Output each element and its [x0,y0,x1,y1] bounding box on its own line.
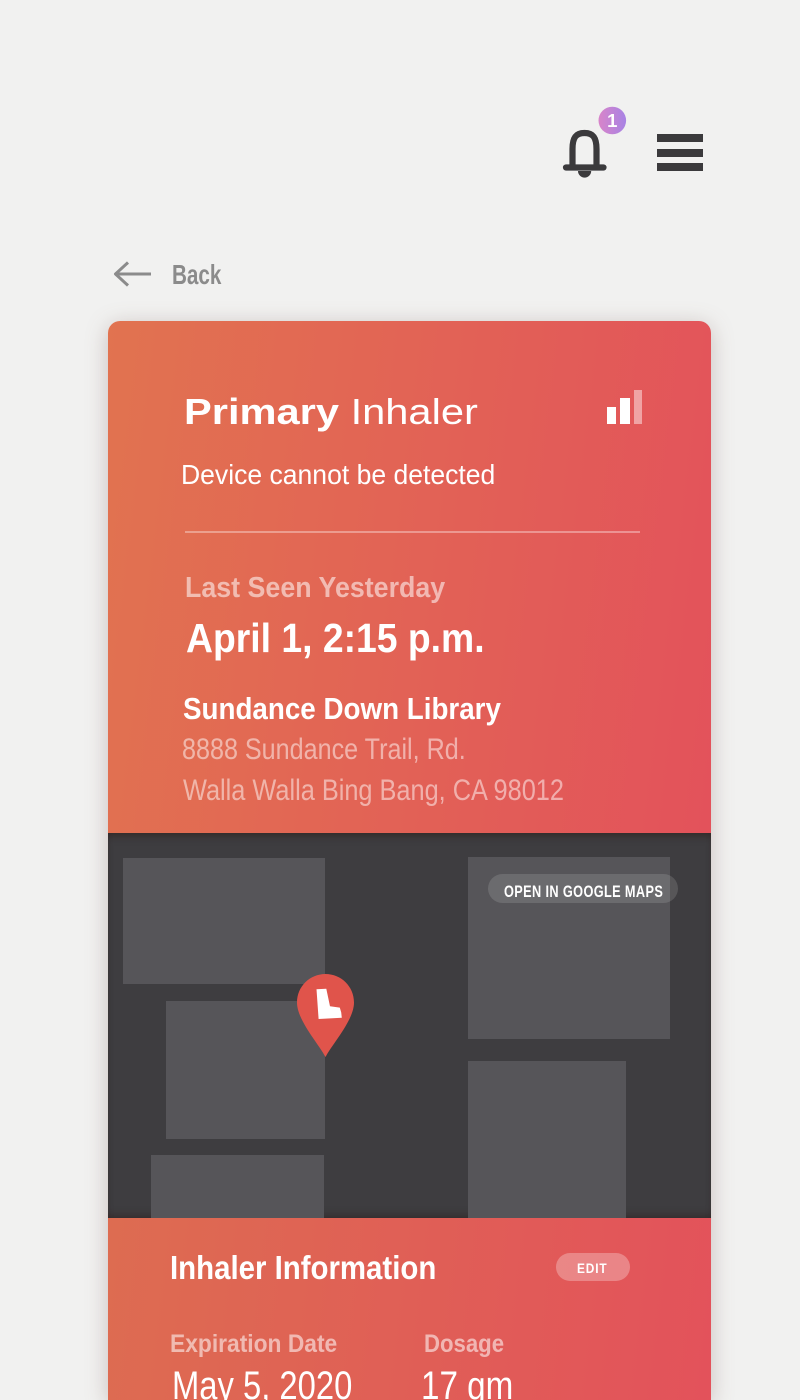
svg-text:1: 1 [607,110,617,131]
